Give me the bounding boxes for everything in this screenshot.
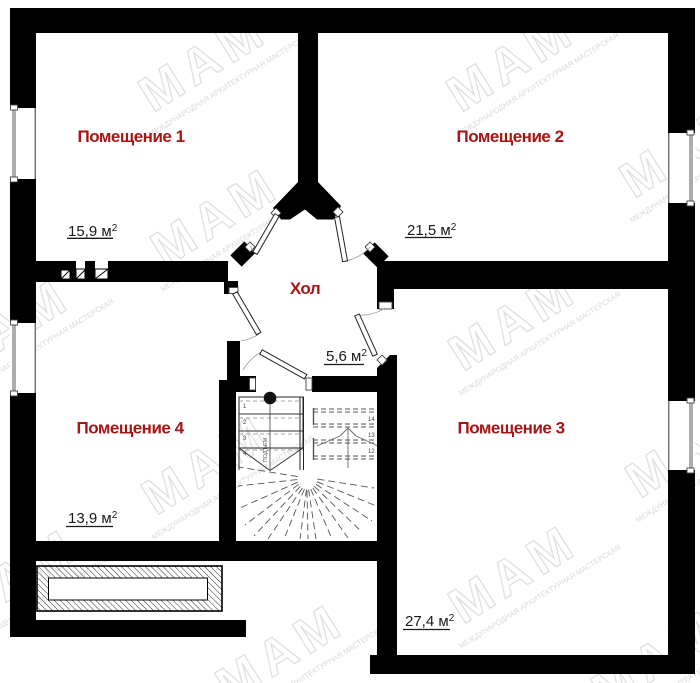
svg-text:15,9 м2: 15,9 м2	[68, 223, 118, 240]
svg-text:21,5 м2: 21,5 м2	[407, 222, 457, 239]
svg-text:13: 13	[368, 433, 375, 439]
svg-text:Помещение 4: Помещение 4	[76, 419, 184, 438]
svg-text:ПОДЪЕМ: ПОДЪЕМ	[263, 437, 269, 462]
svg-text:Помещение 3: Помещение 3	[457, 419, 564, 438]
svg-text:Хол: Хол	[290, 279, 320, 298]
svg-text:Помещение 2: Помещение 2	[456, 127, 563, 146]
svg-text:12: 12	[368, 449, 375, 455]
svg-text:Помещение 1: Помещение 1	[77, 127, 184, 146]
svg-text:27,4 м2: 27,4 м2	[405, 613, 455, 630]
svg-text:13,9 м2: 13,9 м2	[68, 510, 118, 527]
svg-text:14: 14	[368, 417, 375, 423]
svg-text:5,6 м2: 5,6 м2	[326, 348, 367, 365]
